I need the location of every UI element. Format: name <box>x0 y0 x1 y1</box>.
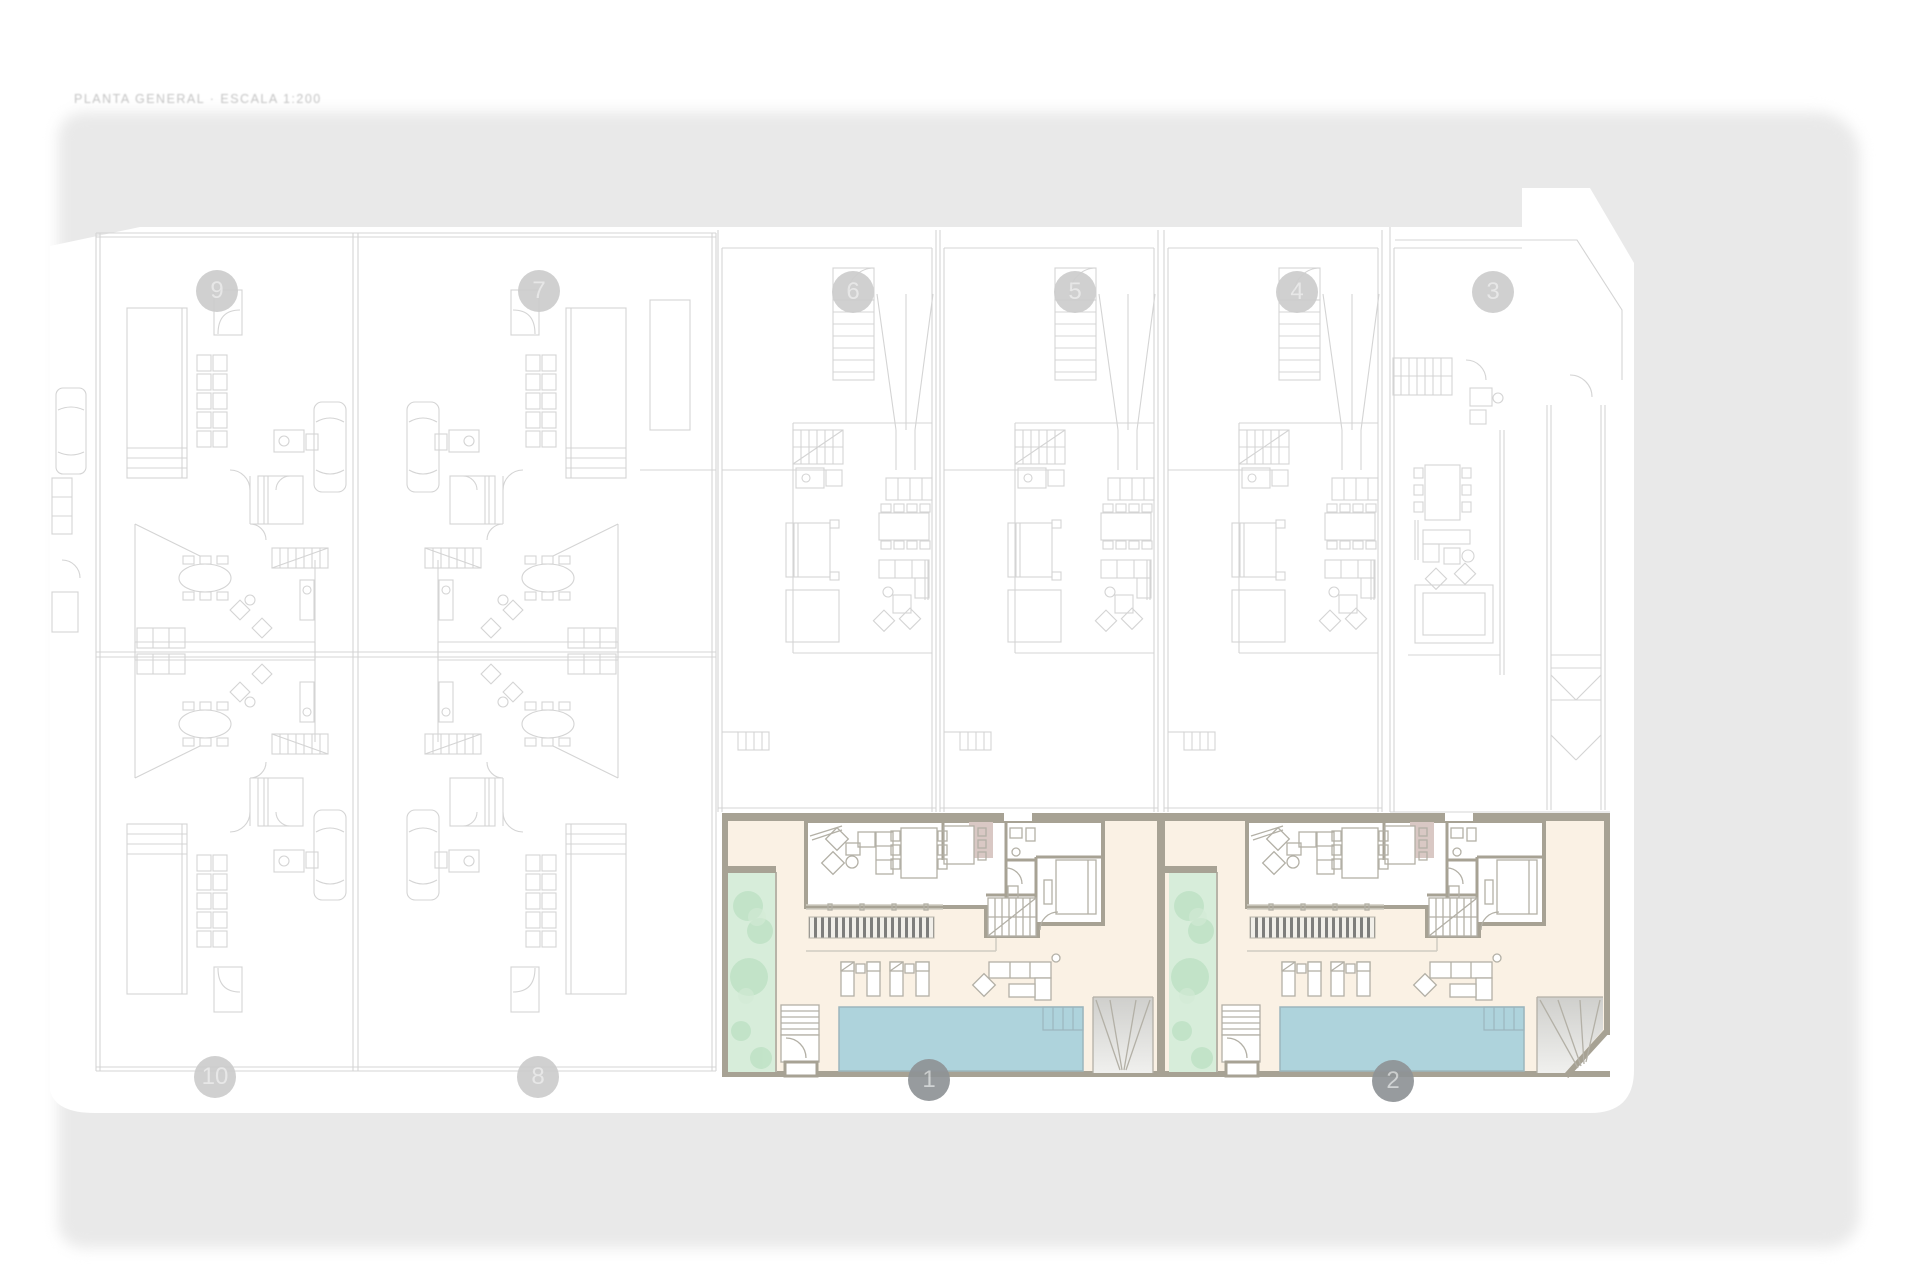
unit-marker-2: 2 <box>1372 1060 1414 1102</box>
unit-marker-9: 9 <box>196 270 238 312</box>
highlighted-units <box>722 813 1610 1077</box>
entry-stairs <box>781 1005 819 1076</box>
unit-marker-7: 7 <box>518 270 560 312</box>
unit-marker-3: 3 <box>1472 271 1514 313</box>
deck-hatch <box>809 917 934 938</box>
unit-marker-8: 8 <box>517 1056 559 1098</box>
site-plan-drawing <box>0 0 1920 1280</box>
unit-marker-4: 4 <box>1276 271 1318 313</box>
dining-table <box>901 828 937 878</box>
unit-marker-6: 6 <box>832 271 874 313</box>
pool <box>839 1007 1083 1071</box>
unit-marker-10: 10 <box>194 1056 236 1098</box>
unit-marker-1: 1 <box>908 1059 950 1101</box>
unit-marker-5: 5 <box>1054 271 1096 313</box>
stairs <box>988 898 1036 936</box>
garden-strip <box>722 866 776 1072</box>
site-plan-page: { "title": { "text": "PLANTA GENERAL · E… <box>0 0 1920 1280</box>
unit-1-driveway <box>1093 997 1153 1073</box>
